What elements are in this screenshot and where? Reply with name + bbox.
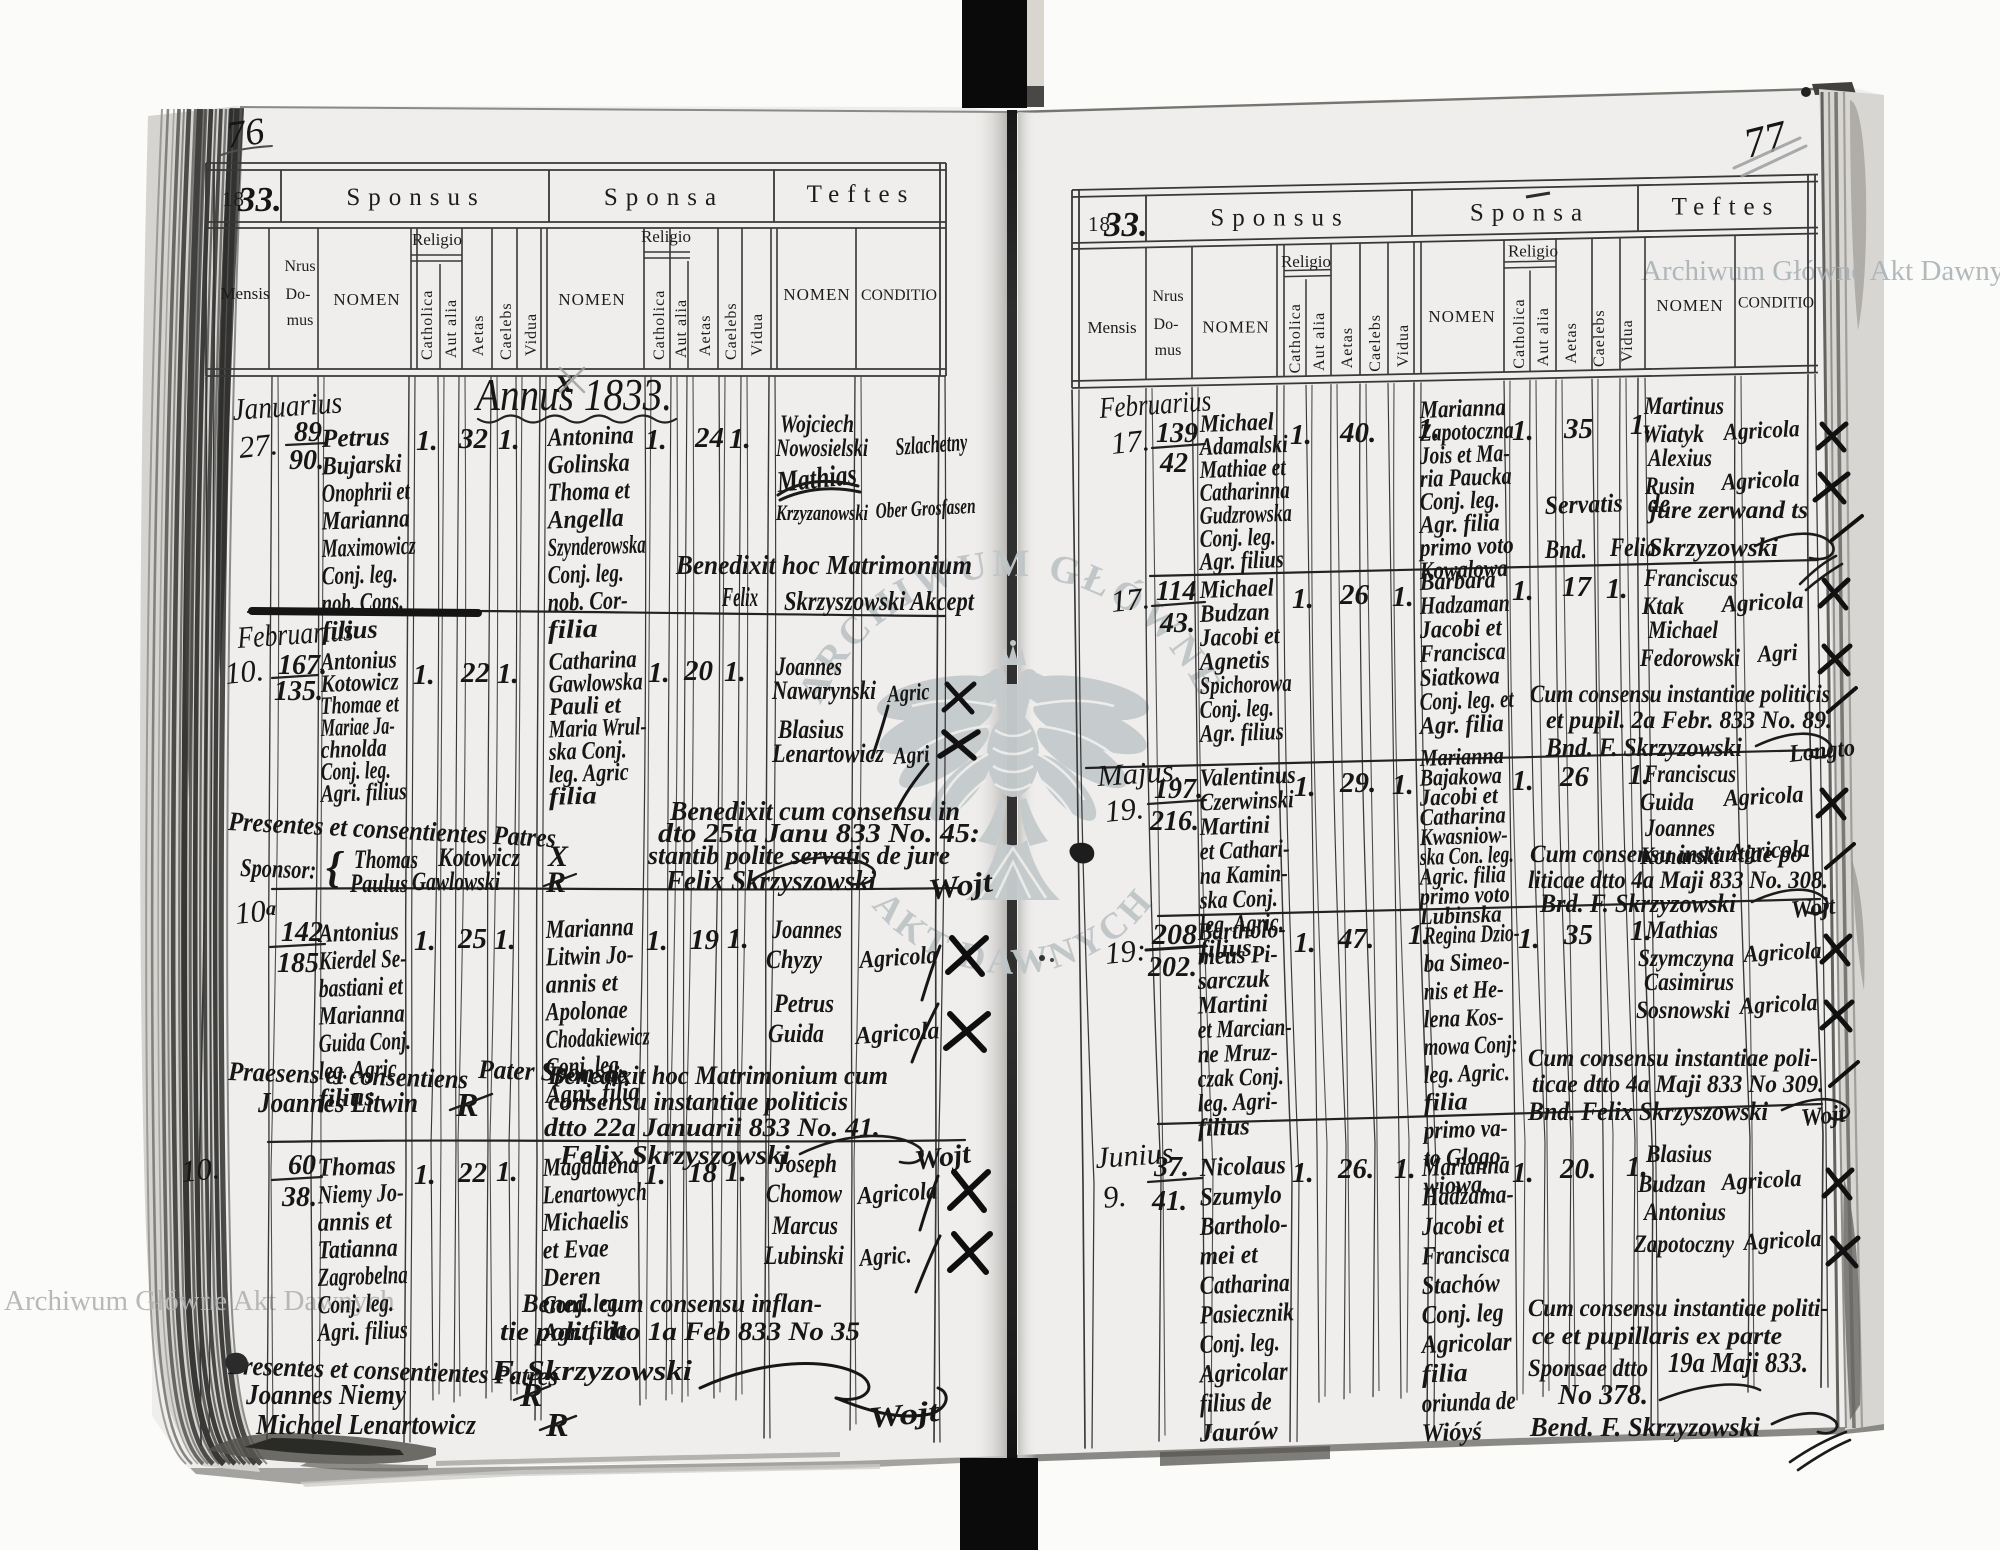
svg-text:26: 26 — [1339, 579, 1370, 611]
svg-text:Agric.: Agric. — [857, 1241, 912, 1272]
svg-text:Agric: Agric — [885, 679, 931, 708]
svg-text:Martinus: Martinus — [1643, 393, 1724, 420]
svg-text:{: { — [326, 843, 344, 892]
svg-text:Aetas: Aetas — [697, 315, 714, 356]
svg-text:Agri: Agri — [1755, 640, 1798, 668]
svg-text:Petrus: Petrus — [320, 422, 390, 453]
svg-text:Cum consensu instantiae politi: Cum consensu instantiae politicis — [1530, 681, 1830, 708]
svg-text:Agricola: Agricola — [1719, 588, 1804, 618]
svg-text:26.: 26. — [1337, 1153, 1374, 1185]
svg-text:1.: 1. — [1512, 575, 1534, 607]
svg-text:Religio: Religio — [641, 227, 691, 246]
svg-text:Chomow: Chomow — [766, 1179, 843, 1208]
svg-text:Sponsa: Sponsa — [604, 184, 724, 211]
svg-text:Fedorowski: Fedorowski — [1639, 645, 1740, 672]
svg-text:Agricola: Agricola — [1741, 938, 1822, 968]
svg-text:33.: 33. — [1103, 205, 1148, 244]
svg-text:oriunda de: oriunda de — [1421, 1386, 1516, 1418]
svg-text:NOMEN: NOMEN — [558, 290, 625, 309]
svg-text:Religio: Religio — [1281, 252, 1331, 271]
svg-text:19: 19 — [690, 924, 719, 956]
svg-text:filia: filia — [1421, 1358, 1468, 1389]
svg-text:a: a — [266, 898, 276, 920]
svg-text:1.: 1. — [496, 1156, 518, 1188]
svg-text:9.: 9. — [1101, 1178, 1128, 1215]
svg-text:24: 24 — [694, 422, 724, 454]
svg-text:Joannes Niemy: Joannes Niemy — [245, 1380, 406, 1411]
svg-text:mei et: mei et — [1199, 1239, 1259, 1270]
svg-text:Petrus: Petrus — [773, 989, 834, 1018]
svg-text:43.: 43. — [1159, 608, 1195, 639]
svg-text:Budzan: Budzan — [1637, 1171, 1706, 1198]
svg-text:19.: 19. — [1103, 790, 1145, 829]
svg-text:22: 22 — [457, 1157, 487, 1189]
svg-text:Zapotoczny: Zapotoczny — [1633, 1231, 1735, 1258]
svg-text:1.: 1. — [413, 659, 435, 691]
svg-text:Agr. filius: Agr. filius — [1198, 718, 1285, 748]
svg-text:NOMEN: NOMEN — [333, 290, 400, 309]
svg-text:Antonius: Antonius — [1642, 1199, 1726, 1226]
svg-text:Mathias: Mathias — [1645, 917, 1718, 944]
svg-text:1.: 1. — [1292, 1157, 1314, 1189]
svg-text:No 378.: No 378. — [1557, 1380, 1648, 1411]
svg-text:Agricola: Agricola — [1721, 416, 1800, 446]
svg-text:consensu instantiae politicis: consensu instantiae politicis — [548, 1087, 848, 1116]
svg-text:Gawlowski: Gawlowski — [412, 867, 501, 896]
svg-text:Chyzy: Chyzy — [766, 945, 822, 974]
svg-text:Sosnowski: Sosnowski — [1636, 997, 1730, 1024]
svg-text:primo va-: primo va- — [1422, 1115, 1509, 1145]
svg-text:40.: 40. — [1339, 417, 1376, 449]
svg-text:NOMEN: NOMEN — [783, 285, 850, 304]
svg-text:Joseph: Joseph — [774, 1149, 837, 1178]
svg-text:Caelebs: Caelebs — [1591, 309, 1608, 367]
svg-text:Wojt: Wojt — [1800, 1100, 1848, 1132]
svg-text:1.: 1. — [645, 424, 667, 456]
svg-text:17.: 17. — [1109, 580, 1151, 619]
svg-text:Wiatyk: Wiatyk — [1642, 421, 1704, 448]
svg-text:Aut alia: Aut alia — [673, 299, 690, 358]
svg-text:Krzyzanowski: Krzyzanowski — [775, 500, 868, 525]
svg-text:Catholica: Catholica — [1287, 303, 1304, 373]
svg-text:Catholica: Catholica — [419, 290, 436, 360]
svg-text:leg. Agric.: leg. Agric. — [1423, 1059, 1510, 1089]
svg-text:1.: 1. — [1392, 581, 1414, 613]
svg-text:Cum consensu instantiae politi: Cum consensu instantiae politi- — [1528, 1295, 1828, 1322]
svg-text:Agricola: Agricola — [855, 1177, 938, 1210]
svg-text:10.: 10. — [179, 1150, 221, 1189]
svg-text:Rusin: Rusin — [1644, 473, 1695, 500]
svg-text:CONDITIO: CONDITIO — [1738, 294, 1814, 311]
svg-text:Religio: Religio — [1508, 241, 1558, 260]
svg-text:Michaelis: Michaelis — [541, 1205, 629, 1237]
svg-text:Archiwum Główne Akt Dawnych: Archiwum Główne Akt Dawnych — [1641, 255, 2000, 287]
svg-text:Agr. filius: Agr. filius — [1198, 546, 1285, 576]
svg-text:Felix: Felix — [721, 582, 758, 612]
svg-text:Wojciech: Wojciech — [780, 411, 854, 438]
svg-text:38.: 38. — [281, 1182, 317, 1213]
svg-text:Caelebs: Caelebs — [498, 302, 515, 360]
svg-text:1.: 1. — [1294, 771, 1316, 803]
svg-text:1.: 1. — [1512, 1157, 1534, 1189]
svg-text:Servatis: Servatis — [1544, 488, 1623, 520]
svg-text:ba Simeo-: ba Simeo- — [1423, 948, 1510, 978]
svg-text:Conj. leg: Conj. leg — [1421, 1298, 1504, 1330]
svg-text:Vidua: Vidua — [1619, 319, 1636, 362]
svg-text:Casimirus: Casimirus — [1644, 969, 1734, 996]
svg-text:Catholica: Catholica — [1511, 298, 1528, 368]
svg-text:Agri. filius: Agri. filius — [319, 778, 407, 808]
svg-text:filia: filia — [548, 782, 597, 811]
svg-text:Michael: Michael — [1647, 617, 1718, 644]
svg-text:Aetas: Aetas — [1339, 327, 1356, 368]
svg-text:Franciscus: Franciscus — [1643, 565, 1738, 592]
svg-text:Skrzyszowski Akcept: Skrzyszowski Akcept — [784, 586, 975, 616]
svg-text:1.: 1. — [1394, 1153, 1416, 1185]
svg-text:33.: 33. — [237, 180, 282, 219]
svg-text:1.: 1. — [497, 658, 519, 690]
svg-text:Guida Conj.: Guida Conj. — [318, 1026, 411, 1058]
svg-text:10: 10 — [233, 893, 268, 931]
svg-text:Szynderowska: Szynderowska — [547, 530, 646, 562]
svg-text:Sponsae dtto: Sponsae dtto — [1528, 1355, 1648, 1382]
svg-text:1.: 1. — [1292, 583, 1314, 615]
svg-text:Agricola: Agricola — [1719, 1166, 1802, 1196]
svg-text:Maximowicz: Maximowicz — [321, 531, 417, 563]
svg-text:10.: 10. — [223, 652, 265, 691]
svg-text:18: 18 — [688, 1157, 718, 1189]
svg-text:20: 20 — [683, 655, 713, 687]
svg-text:1.: 1. — [646, 925, 668, 957]
svg-text:1.: 1. — [727, 923, 749, 955]
svg-text:25: 25 — [457, 923, 487, 955]
svg-text:annis et: annis et — [545, 967, 619, 999]
svg-text:1.: 1. — [414, 925, 436, 957]
svg-text:Litwin Jo-: Litwin Jo- — [544, 939, 634, 971]
svg-text:1.: 1. — [1392, 769, 1414, 801]
svg-text:42: 42 — [1159, 448, 1188, 479]
svg-text:20.: 20. — [1559, 1153, 1596, 1185]
svg-text:nob. Cor-: nob. Cor- — [547, 585, 628, 617]
svg-text:Blasius: Blasius — [1645, 1141, 1712, 1168]
svg-text:ce et pupillaris ex parte: ce et pupillaris ex parte — [1532, 1323, 1782, 1350]
svg-text:NOMEN: NOMEN — [1428, 307, 1495, 326]
svg-text:Agricola: Agricola — [1741, 1226, 1822, 1256]
svg-text:Wióyś: Wióyś — [1421, 1416, 1483, 1447]
svg-text:216.: 216. — [1149, 806, 1199, 837]
svg-text:Jacobi et: Jacobi et — [1420, 1209, 1504, 1241]
svg-text:17.: 17. — [1109, 422, 1151, 461]
svg-text:mus: mus — [1155, 342, 1182, 359]
svg-text:Jaurów: Jaurów — [1198, 1416, 1279, 1448]
svg-text:Teftes: Teftes — [1672, 193, 1781, 220]
svg-text:Bend. F. Skrzyzowski: Bend. F. Skrzyzowski — [1529, 1412, 1760, 1442]
svg-text:Skrzyzowski: Skrzyzowski — [1648, 533, 1779, 562]
svg-text:Teftes: Teftes — [807, 181, 916, 208]
svg-text:et Evae: et Evae — [542, 1233, 609, 1264]
svg-text:1.: 1. — [644, 1159, 666, 1191]
svg-text:22: 22 — [460, 657, 490, 689]
svg-text:Cum consensu instantiae poli-: Cum consensu instantiae poli- — [1528, 1045, 1818, 1072]
svg-text:90.: 90. — [289, 445, 324, 476]
svg-text:47.: 47. — [1337, 923, 1374, 955]
svg-text:Aetas: Aetas — [1563, 322, 1580, 363]
svg-text:Sponsus: Sponsus — [346, 184, 485, 211]
svg-text:19:: 19: — [1103, 932, 1148, 971]
svg-text:Agricola: Agricola — [1737, 990, 1818, 1020]
svg-text:Agricolar: Agricolar — [1197, 1356, 1288, 1388]
svg-text:Ober Grosfasen: Ober Grosfasen — [875, 493, 976, 523]
svg-text:filia: filia — [547, 614, 598, 645]
svg-text:135.: 135. — [274, 676, 323, 707]
svg-text:1.: 1. — [498, 424, 520, 456]
svg-text:Agricola: Agricola — [1719, 466, 1800, 496]
svg-text:Catharina: Catharina — [1199, 1268, 1290, 1300]
svg-text:Nrus: Nrus — [284, 258, 315, 275]
svg-text:35: 35 — [1563, 413, 1593, 445]
svg-text:lena Kos-: lena Kos- — [1423, 1004, 1504, 1034]
svg-text:dtto 22a Januarii 833 No. 41.: dtto 22a Januarii 833 No. 41. — [544, 1113, 880, 1142]
svg-text:Joannes Litwin: Joannes Litwin — [257, 1088, 418, 1119]
svg-text:Lubinski: Lubinski — [763, 1241, 844, 1270]
svg-text:Agr. filia: Agr. filia — [1417, 710, 1504, 740]
svg-text:Zagrobelna: Zagrobelna — [316, 1260, 408, 1292]
svg-text:Ktak: Ktak — [1641, 593, 1684, 620]
svg-text:CONDITIO: CONDITIO — [861, 287, 937, 304]
svg-text:1.: 1. — [724, 656, 746, 688]
svg-text:Sponsa: Sponsa — [1470, 200, 1590, 227]
svg-text:Sponsor:: Sponsor: — [240, 853, 317, 885]
svg-text:jure zerwand ts: jure zerwand ts — [1646, 497, 1808, 524]
svg-text:Nawarynski: Nawarynski — [771, 676, 876, 705]
svg-text:29.: 29. — [1339, 767, 1376, 799]
svg-text:27.: 27. — [237, 426, 279, 465]
svg-text:Bartholo-: Bartholo- — [1198, 1209, 1288, 1241]
svg-text:1.: 1. — [648, 657, 670, 689]
svg-text:Religio: Religio — [412, 230, 462, 249]
svg-text:32: 32 — [458, 423, 488, 455]
svg-text:Bnd. F. Skrzyzowski: Bnd. F. Skrzyzowski — [1545, 733, 1743, 762]
svg-text:1.: 1. — [494, 924, 516, 956]
svg-text:Cum consensu instantiae po-: Cum consensu instantiae po- — [1530, 841, 1810, 868]
svg-text:185: 185 — [277, 948, 319, 979]
svg-text:1.: 1. — [725, 1156, 747, 1188]
svg-text:Deren: Deren — [541, 1261, 601, 1292]
svg-text:Hadzama-: Hadzama- — [1420, 1179, 1514, 1211]
svg-text:1.: 1. — [414, 1159, 436, 1191]
svg-text:17: 17 — [1562, 571, 1593, 603]
svg-text:Nrus: Nrus — [1152, 288, 1183, 305]
svg-text:Szymczyna: Szymczyna — [1638, 945, 1734, 972]
svg-text:Regina Dzio-: Regina Dzio- — [1423, 920, 1521, 950]
svg-text:Mensis: Mensis — [220, 284, 269, 303]
svg-text:annis et: annis et — [317, 1205, 393, 1237]
svg-text:Agricola: Agricola — [1721, 782, 1804, 812]
svg-text:Vidua: Vidua — [749, 313, 766, 356]
svg-text:1.: 1. — [729, 423, 751, 455]
svg-text:1.: 1. — [1606, 573, 1628, 605]
svg-text:1.: 1. — [1294, 927, 1316, 959]
svg-text:Agri. filius: Agri. filius — [316, 1315, 409, 1347]
svg-text:Michael Lenartowicz: Michael Lenartowicz — [255, 1410, 476, 1441]
svg-text:Franciscus: Franciscus — [1643, 761, 1736, 788]
svg-text:Aut alia: Aut alia — [1311, 312, 1328, 371]
svg-text:Francisca: Francisca — [1420, 1238, 1510, 1270]
svg-text:1.: 1. — [1518, 923, 1540, 955]
svg-text:NOMEN: NOMEN — [1656, 296, 1723, 315]
svg-text:142: 142 — [281, 917, 323, 948]
svg-text:35: 35 — [1563, 919, 1593, 951]
svg-text:1.: 1. — [1512, 415, 1534, 447]
svg-text:Aut alia: Aut alia — [443, 299, 460, 358]
svg-text:41.: 41. — [1151, 1186, 1187, 1217]
svg-text:ticae dtto 4a Maji 833 No 309.: ticae dtto 4a Maji 833 No 309. — [1532, 1071, 1824, 1098]
svg-text:Lenartowych: Lenartowych — [541, 1177, 647, 1210]
svg-text:Aetas: Aetas — [470, 315, 487, 356]
svg-text:Guida: Guida — [1640, 789, 1694, 816]
svg-text:60: 60 — [288, 1150, 316, 1181]
svg-text:Marianna: Marianna — [1420, 1150, 1510, 1182]
svg-text:Agricola: Agricola — [857, 942, 938, 974]
svg-text:filius de: filius de — [1199, 1387, 1272, 1418]
svg-text:1.: 1. — [1290, 419, 1312, 451]
svg-text:Pasiecznik: Pasiecznik — [1198, 1297, 1294, 1329]
svg-text:Marcus: Marcus — [771, 1211, 838, 1240]
svg-text:Sponsus: Sponsus — [1210, 205, 1349, 232]
svg-text:Pater Sponsae: Pater Sponsae — [477, 1054, 629, 1089]
svg-text:Bnd. Felix Skrzyszowski: Bnd. Felix Skrzyszowski — [1527, 1097, 1769, 1126]
svg-text:Conj. leg.: Conj. leg. — [1199, 1327, 1280, 1359]
svg-text:Alexius: Alexius — [1646, 445, 1712, 472]
svg-text:Do-: Do- — [286, 286, 311, 303]
svg-text:Paulus: Paulus — [349, 869, 408, 898]
svg-text:Agricolar: Agricolar — [1419, 1327, 1512, 1359]
svg-text:Benedixit hoc Matrimonium: Benedixit hoc Matrimonium — [675, 550, 972, 580]
svg-text:Brd. F. Skrzyzowski: Brd. F. Skrzyzowski — [1539, 889, 1737, 918]
svg-text:Joannes: Joannes — [771, 915, 842, 944]
svg-text:tie polit. dto 1a Feb 833 No: tie polit. dto 1a Feb 833 No 35 — [500, 1317, 860, 1346]
svg-text:et pupil. 2a Febr. 833 No. 8: et pupil. 2a Febr. 833 No. 89. — [1546, 707, 1832, 734]
svg-text:1.: 1. — [416, 425, 438, 457]
svg-text:Bened. cum consensu inflan-: Bened. cum consensu inflan- — [521, 1289, 822, 1318]
svg-text:Bnd.: Bnd. — [1544, 535, 1587, 564]
svg-text:NOMEN: NOMEN — [1202, 318, 1269, 337]
svg-text:Aut alia: Aut alia — [1535, 307, 1552, 366]
svg-text:filia: filia — [1423, 1088, 1468, 1117]
svg-text:filius: filius — [1197, 1113, 1250, 1142]
svg-text:Guida: Guida — [768, 1019, 824, 1048]
svg-text:Stachów: Stachów — [1421, 1268, 1501, 1300]
svg-text:Szlachetny: Szlachetny — [895, 429, 969, 461]
svg-text:Szumylo: Szumylo — [1199, 1180, 1282, 1212]
svg-text:Do-: Do- — [1154, 316, 1179, 333]
svg-text:26: 26 — [1559, 761, 1590, 793]
svg-text:Chodakiewicz: Chodakiewicz — [545, 1021, 651, 1054]
svg-text:nis et He-: nis et He- — [1423, 976, 1504, 1006]
svg-text:Mensis: Mensis — [1087, 318, 1136, 337]
svg-text:19a Maji 833.: 19a Maji 833. — [1668, 1348, 1808, 1379]
svg-text:Joannes: Joannes — [1644, 815, 1715, 842]
svg-text:Nicolaus: Nicolaus — [1198, 1150, 1286, 1182]
svg-text:Caelebs: Caelebs — [723, 302, 740, 360]
svg-text:202.: 202. — [1147, 952, 1197, 983]
svg-text:Lenartowicz: Lenartowicz — [771, 739, 885, 768]
svg-text:mowa Conj:: mowa Conj: — [1423, 1031, 1518, 1061]
svg-text:Vidua: Vidua — [1395, 324, 1412, 367]
svg-text:Vidua: Vidua — [523, 313, 540, 356]
svg-text:1.: 1. — [1512, 765, 1534, 797]
svg-text:Catholica: Catholica — [651, 290, 668, 360]
svg-text:mus: mus — [287, 312, 314, 329]
svg-text:Caelebs: Caelebs — [1367, 314, 1384, 372]
svg-text:Wojt: Wojt — [1790, 892, 1838, 924]
